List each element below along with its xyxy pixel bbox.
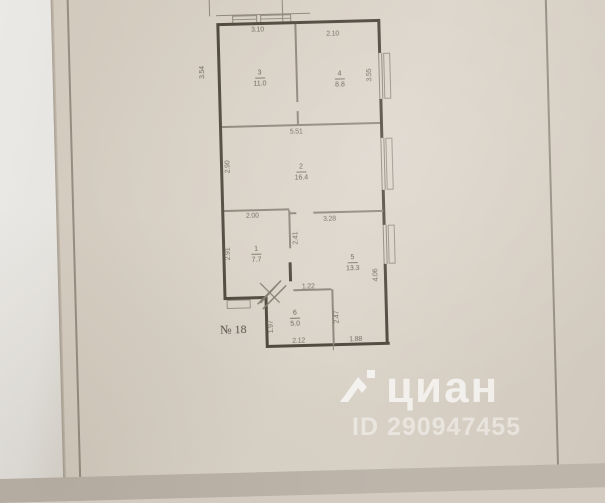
room-number: 4 bbox=[335, 70, 345, 79]
room-number: 3 bbox=[255, 69, 265, 78]
dim-room3-top: 3.10 bbox=[251, 26, 264, 33]
wall-room3-room4 bbox=[294, 24, 298, 102]
dim-room6-bottom: 2.12 bbox=[292, 337, 305, 344]
window-sill bbox=[385, 138, 393, 190]
extension-line bbox=[281, 0, 283, 22]
wall-outer-right bbox=[384, 264, 389, 345]
dim-room6-left: 1.97 bbox=[268, 320, 275, 333]
dim-room4-top: 2.10 bbox=[326, 30, 339, 37]
photo-of-floor-plan: { "document": { "sheet_number": "№ 18" }… bbox=[0, 0, 605, 480]
room-number: 2 bbox=[296, 163, 306, 172]
room-area: 8.8 bbox=[335, 81, 345, 89]
dim-room2-top: 5.51 bbox=[290, 128, 303, 135]
dim-room2-left: 2.90 bbox=[224, 160, 231, 173]
wall-room2-room1 bbox=[224, 208, 289, 211]
dim-room3-left: 3.54 bbox=[199, 66, 206, 79]
dim-room1-left: 2.91 bbox=[225, 247, 232, 260]
room-number: 1 bbox=[251, 246, 261, 255]
room-area: 7.7 bbox=[251, 257, 261, 265]
window-line bbox=[378, 53, 380, 99]
room-area: 11.0 bbox=[253, 80, 266, 88]
window-sill bbox=[383, 53, 391, 99]
window-sill bbox=[388, 225, 396, 264]
dim-room1-right: 2.41 bbox=[292, 232, 299, 245]
cian-watermark-text: циан bbox=[386, 366, 499, 410]
extension-line bbox=[208, 0, 210, 16]
window-line bbox=[383, 225, 385, 264]
room-5-label: 5 13.3 bbox=[345, 246, 359, 273]
room-3-label: 3 11.0 bbox=[253, 61, 267, 88]
room-number: 5 bbox=[347, 254, 357, 263]
wall-outer-right bbox=[379, 99, 383, 138]
wall-outer-right bbox=[377, 19, 381, 53]
wall-room2-room5 bbox=[289, 212, 296, 214]
room-1-label: 1 7.7 bbox=[251, 238, 262, 265]
wall-room3-room4 bbox=[297, 111, 299, 124]
room-2-label: 2 16.4 bbox=[294, 155, 308, 182]
listing-id-watermark: ID 290947455 bbox=[352, 414, 521, 441]
dim-room5-right: 4.06 bbox=[372, 269, 379, 282]
dim-room6-right: 2.47 bbox=[333, 311, 340, 324]
room-4-label: 4 8.8 bbox=[334, 62, 345, 89]
dim-room5-top: 3.28 bbox=[323, 216, 336, 223]
wall-room1-room5 bbox=[288, 210, 290, 248]
wall-outer-bottom bbox=[266, 342, 390, 348]
room-area: 13.3 bbox=[346, 265, 360, 273]
wall-room2-room5 bbox=[313, 210, 383, 213]
wall-rooms34-room2 bbox=[222, 122, 380, 128]
room-number: 6 bbox=[290, 310, 300, 319]
room-area: 5.0 bbox=[290, 321, 300, 329]
dim-room4-right: 3.55 bbox=[366, 69, 373, 82]
room-6-label: 6 5.0 bbox=[290, 302, 301, 329]
sheet-number: № 18 bbox=[220, 322, 247, 338]
cian-logo-icon bbox=[337, 365, 379, 407]
room-area: 16.4 bbox=[294, 174, 308, 182]
dim-room1-top: 2.00 bbox=[246, 213, 259, 220]
dim-room5-bottom: 1.88 bbox=[349, 336, 362, 343]
wall-outer-right bbox=[382, 190, 386, 225]
window-line bbox=[380, 138, 382, 190]
dim-room6-top: 1.22 bbox=[302, 283, 315, 290]
